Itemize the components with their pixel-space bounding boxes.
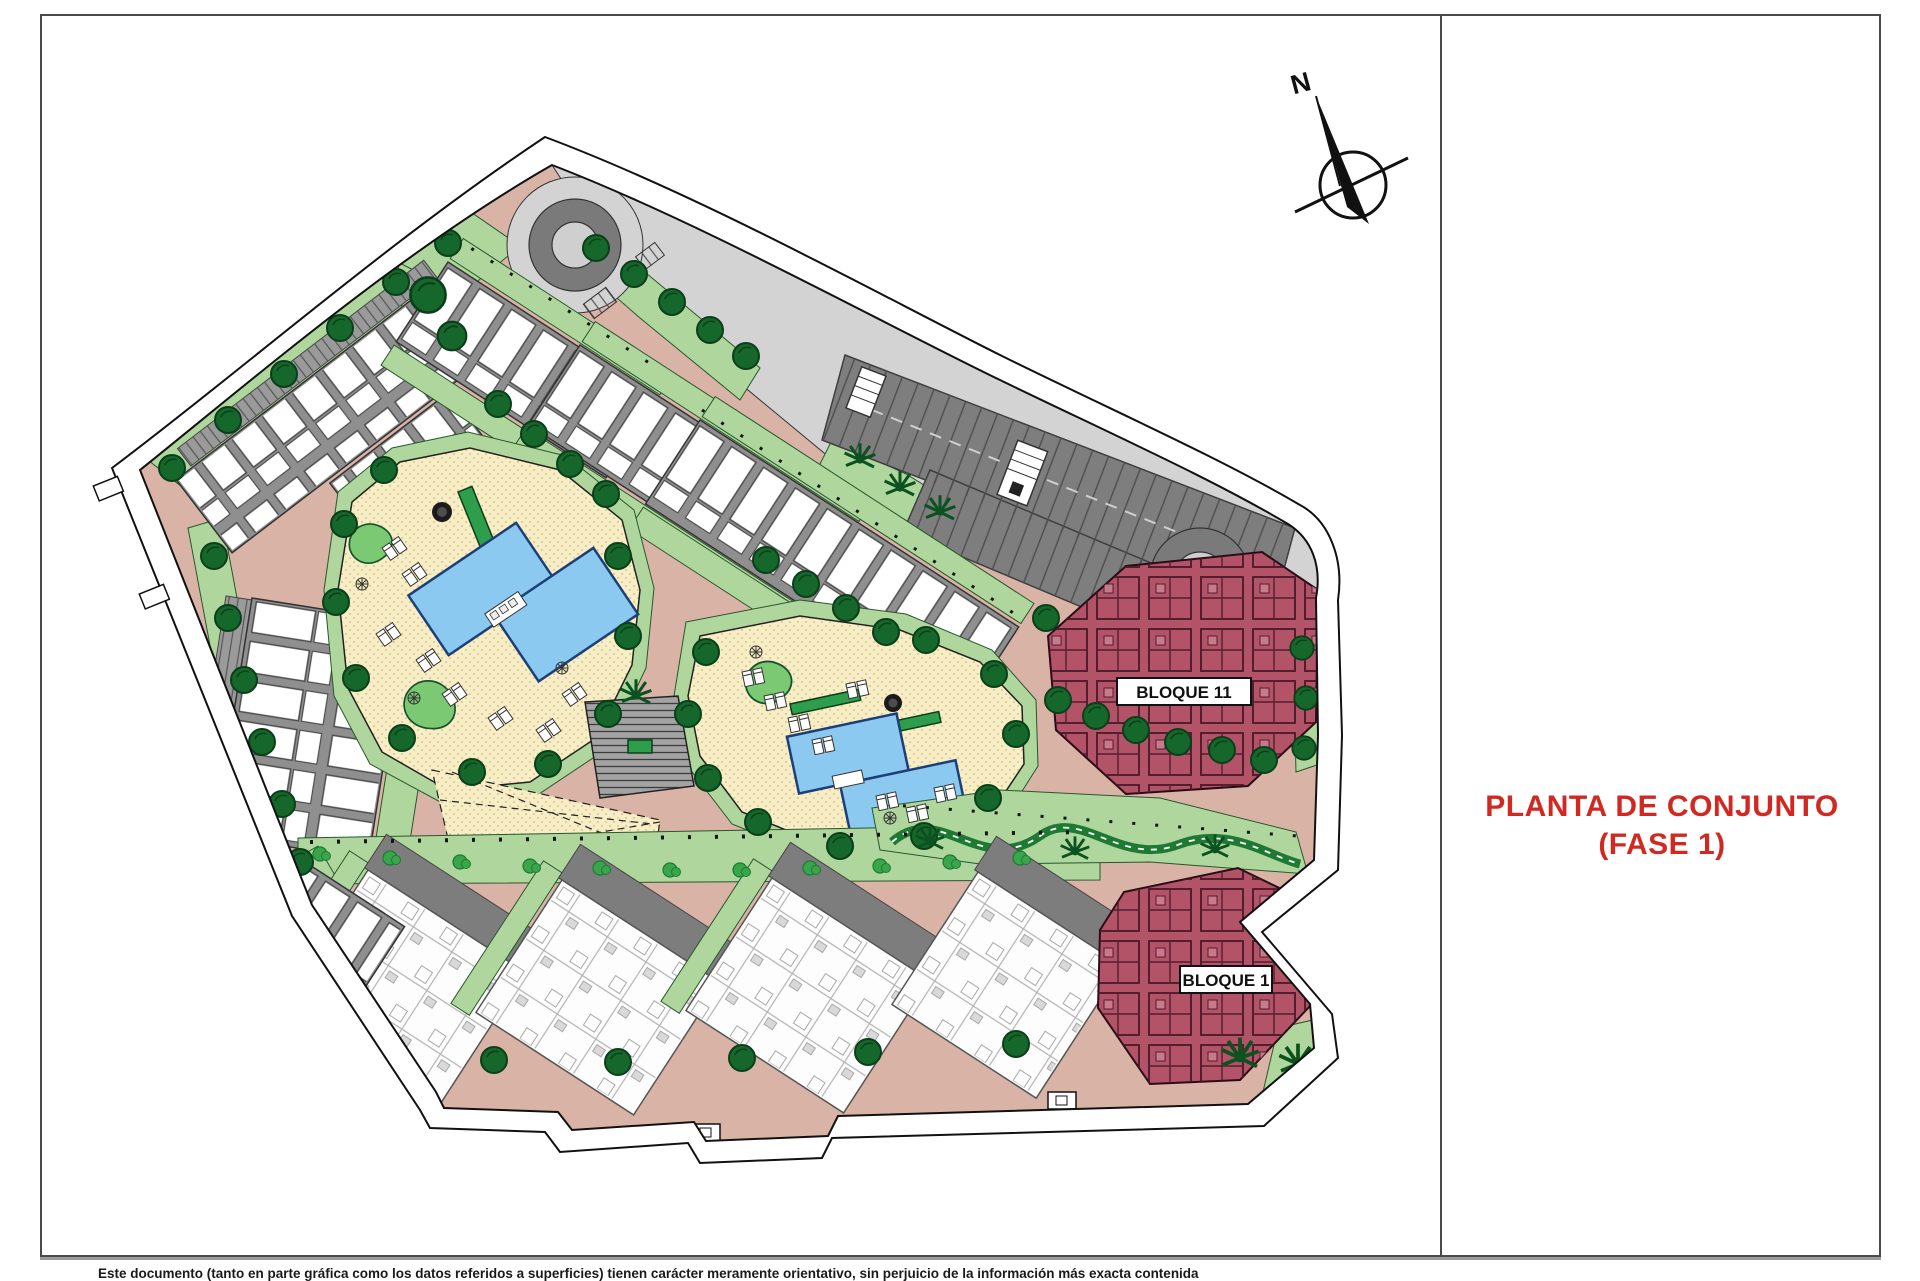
svg-text:BLOQUE 11: BLOQUE 11 xyxy=(1136,683,1231,702)
compass-north-label: N xyxy=(1287,66,1314,100)
title-block: PLANTA DE CONJUNTO (FASE 1) xyxy=(1442,788,1882,864)
footer-disclaimer: Este documento (tanto en parte gráfica c… xyxy=(98,1266,1858,1281)
svg-text:BLOQUE 1: BLOQUE 1 xyxy=(1183,971,1270,990)
bloque-11-label: BLOQUE 11 xyxy=(1117,678,1251,705)
north-compass: N xyxy=(1287,66,1408,224)
plan-title-line1: PLANTA DE CONJUNTO xyxy=(1442,788,1882,826)
site-plan-drawing: BLOQUE 11 BLOQUE 1 N xyxy=(0,0,1920,1280)
footer-divider-line xyxy=(40,1257,1881,1260)
bloque-1-label: BLOQUE 1 xyxy=(1180,966,1272,993)
plan-title-line2: (FASE 1) xyxy=(1442,826,1882,864)
